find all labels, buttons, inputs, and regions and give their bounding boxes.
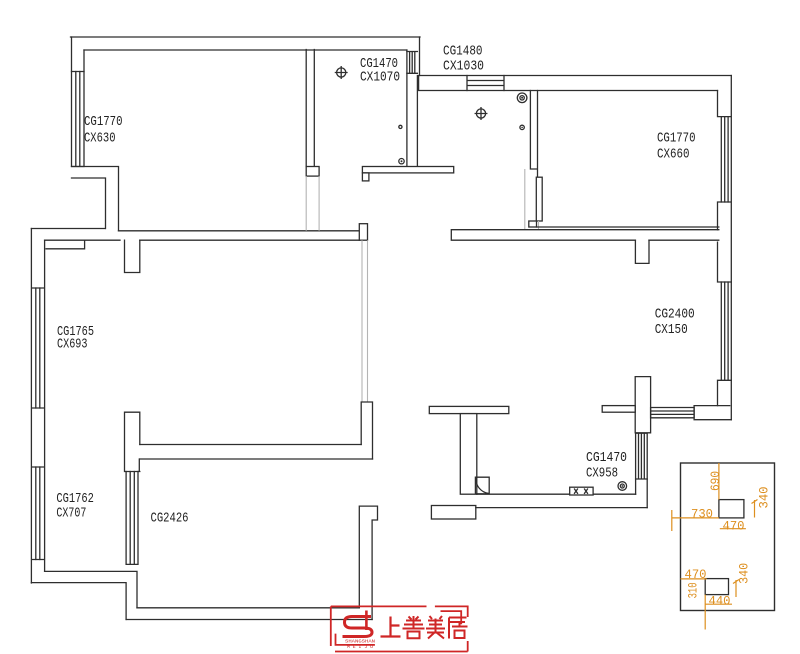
svg-text:CX1070: CX1070 bbox=[360, 70, 400, 86]
svg-text:CX660: CX660 bbox=[657, 147, 690, 163]
svg-text:CG1770: CG1770 bbox=[657, 131, 696, 147]
svg-text:M E I J U: M E I J U bbox=[347, 644, 373, 650]
svg-text:CX958: CX958 bbox=[586, 466, 618, 482]
svg-text:CG1470: CG1470 bbox=[586, 450, 627, 466]
svg-text:340: 340 bbox=[737, 563, 751, 584]
svg-text:340: 340 bbox=[758, 487, 772, 509]
svg-text:CG2426: CG2426 bbox=[151, 511, 189, 527]
svg-text:470: 470 bbox=[685, 568, 707, 582]
svg-text:CG2400: CG2400 bbox=[655, 307, 695, 323]
svg-text:CG1770: CG1770 bbox=[84, 114, 123, 130]
svg-text:310: 310 bbox=[687, 582, 701, 598]
svg-text:CX630: CX630 bbox=[84, 131, 116, 147]
svg-text:CG1480: CG1480 bbox=[443, 44, 483, 60]
svg-text:440: 440 bbox=[709, 595, 731, 609]
svg-text:SHANGSHAN: SHANGSHAN bbox=[345, 639, 375, 645]
svg-text:CX150: CX150 bbox=[655, 322, 688, 338]
svg-text:CX693: CX693 bbox=[57, 337, 88, 353]
svg-text:730: 730 bbox=[691, 508, 713, 522]
svg-text:690: 690 bbox=[709, 471, 723, 491]
svg-text:CX1030: CX1030 bbox=[443, 59, 484, 75]
svg-text:470: 470 bbox=[723, 520, 745, 534]
svg-text:CX707: CX707 bbox=[56, 506, 86, 522]
